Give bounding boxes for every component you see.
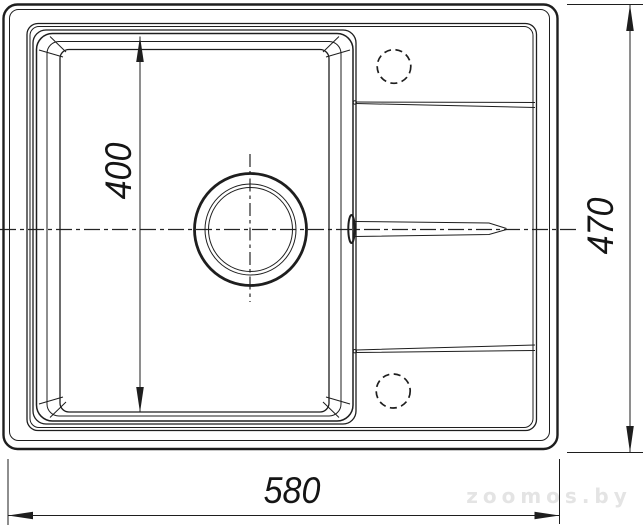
arrowhead-580-right <box>535 512 560 520</box>
watermark: zoomos.by <box>466 484 632 508</box>
arrowhead-470-top <box>626 5 634 32</box>
tap-hole-bottom <box>376 374 410 408</box>
arrowhead-580-left <box>8 512 33 520</box>
centerlines <box>0 154 578 302</box>
rim-edge-inner <box>30 27 533 428</box>
arrowhead-470-bottom <box>626 426 634 453</box>
dimension-label-580: 580 <box>264 470 321 512</box>
dimension-label-400: 400 <box>98 142 140 199</box>
sink-technical-drawing: zoomos.by <box>0 0 643 527</box>
ridge-top-edge <box>355 222 507 229</box>
drainboard-groove-bottom <box>353 345 535 353</box>
rim-edge-outer <box>27 24 537 431</box>
dimension-bowl-400: 400 <box>98 37 144 413</box>
drainboard-groove-top <box>353 101 535 108</box>
drawing-svg: zoomos.by <box>0 0 643 527</box>
sink-outline <box>4 5 558 450</box>
dimension-label-470: 470 <box>580 197 622 254</box>
sink-outline-inner <box>10 10 550 441</box>
sink-outline-outer <box>4 5 558 450</box>
rim-edge <box>27 24 537 431</box>
arrowhead-400-bottom <box>136 387 144 413</box>
dimension-depth-470: 470 <box>567 5 643 453</box>
tap-hole-top <box>377 50 411 84</box>
ridge-bottom-edge <box>355 230 507 237</box>
